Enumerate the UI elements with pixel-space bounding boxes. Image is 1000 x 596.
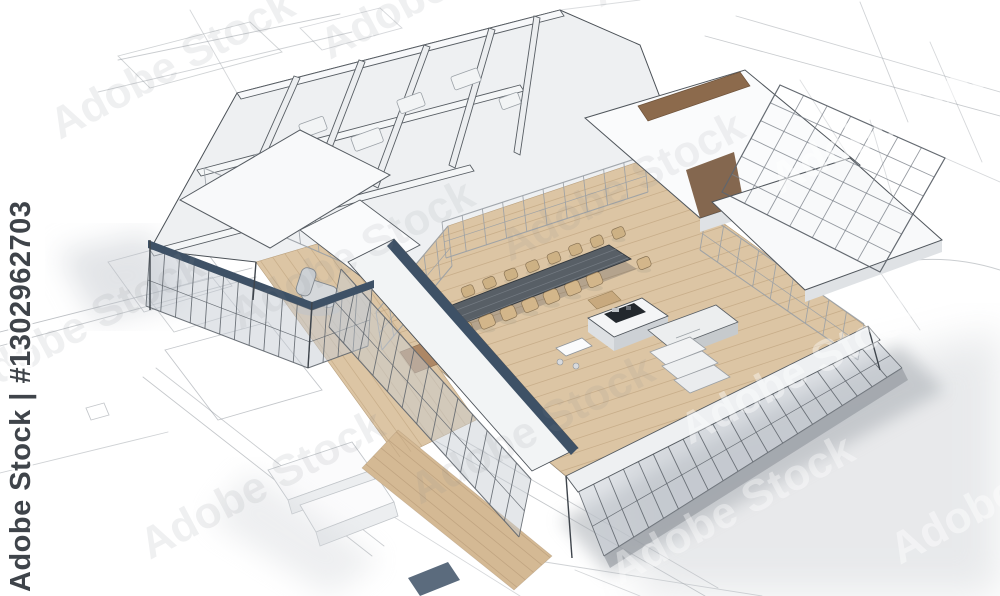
stool — [573, 363, 579, 369]
cooktop-item — [626, 306, 631, 310]
stock-photo-canvas: Adobe StockAdobe StockAdobe StockAdobe S… — [0, 0, 1000, 596]
cooktop-item — [612, 308, 619, 312]
navy-panel — [408, 562, 460, 596]
architectural-sketch-render: Adobe StockAdobe StockAdobe StockAdobe S… — [0, 0, 1000, 596]
watermark-tile: Adobe Stock — [582, 0, 843, 17]
watermark-id-label: Adobe Stock | #1302962703 — [5, 201, 37, 592]
stool — [557, 359, 563, 365]
